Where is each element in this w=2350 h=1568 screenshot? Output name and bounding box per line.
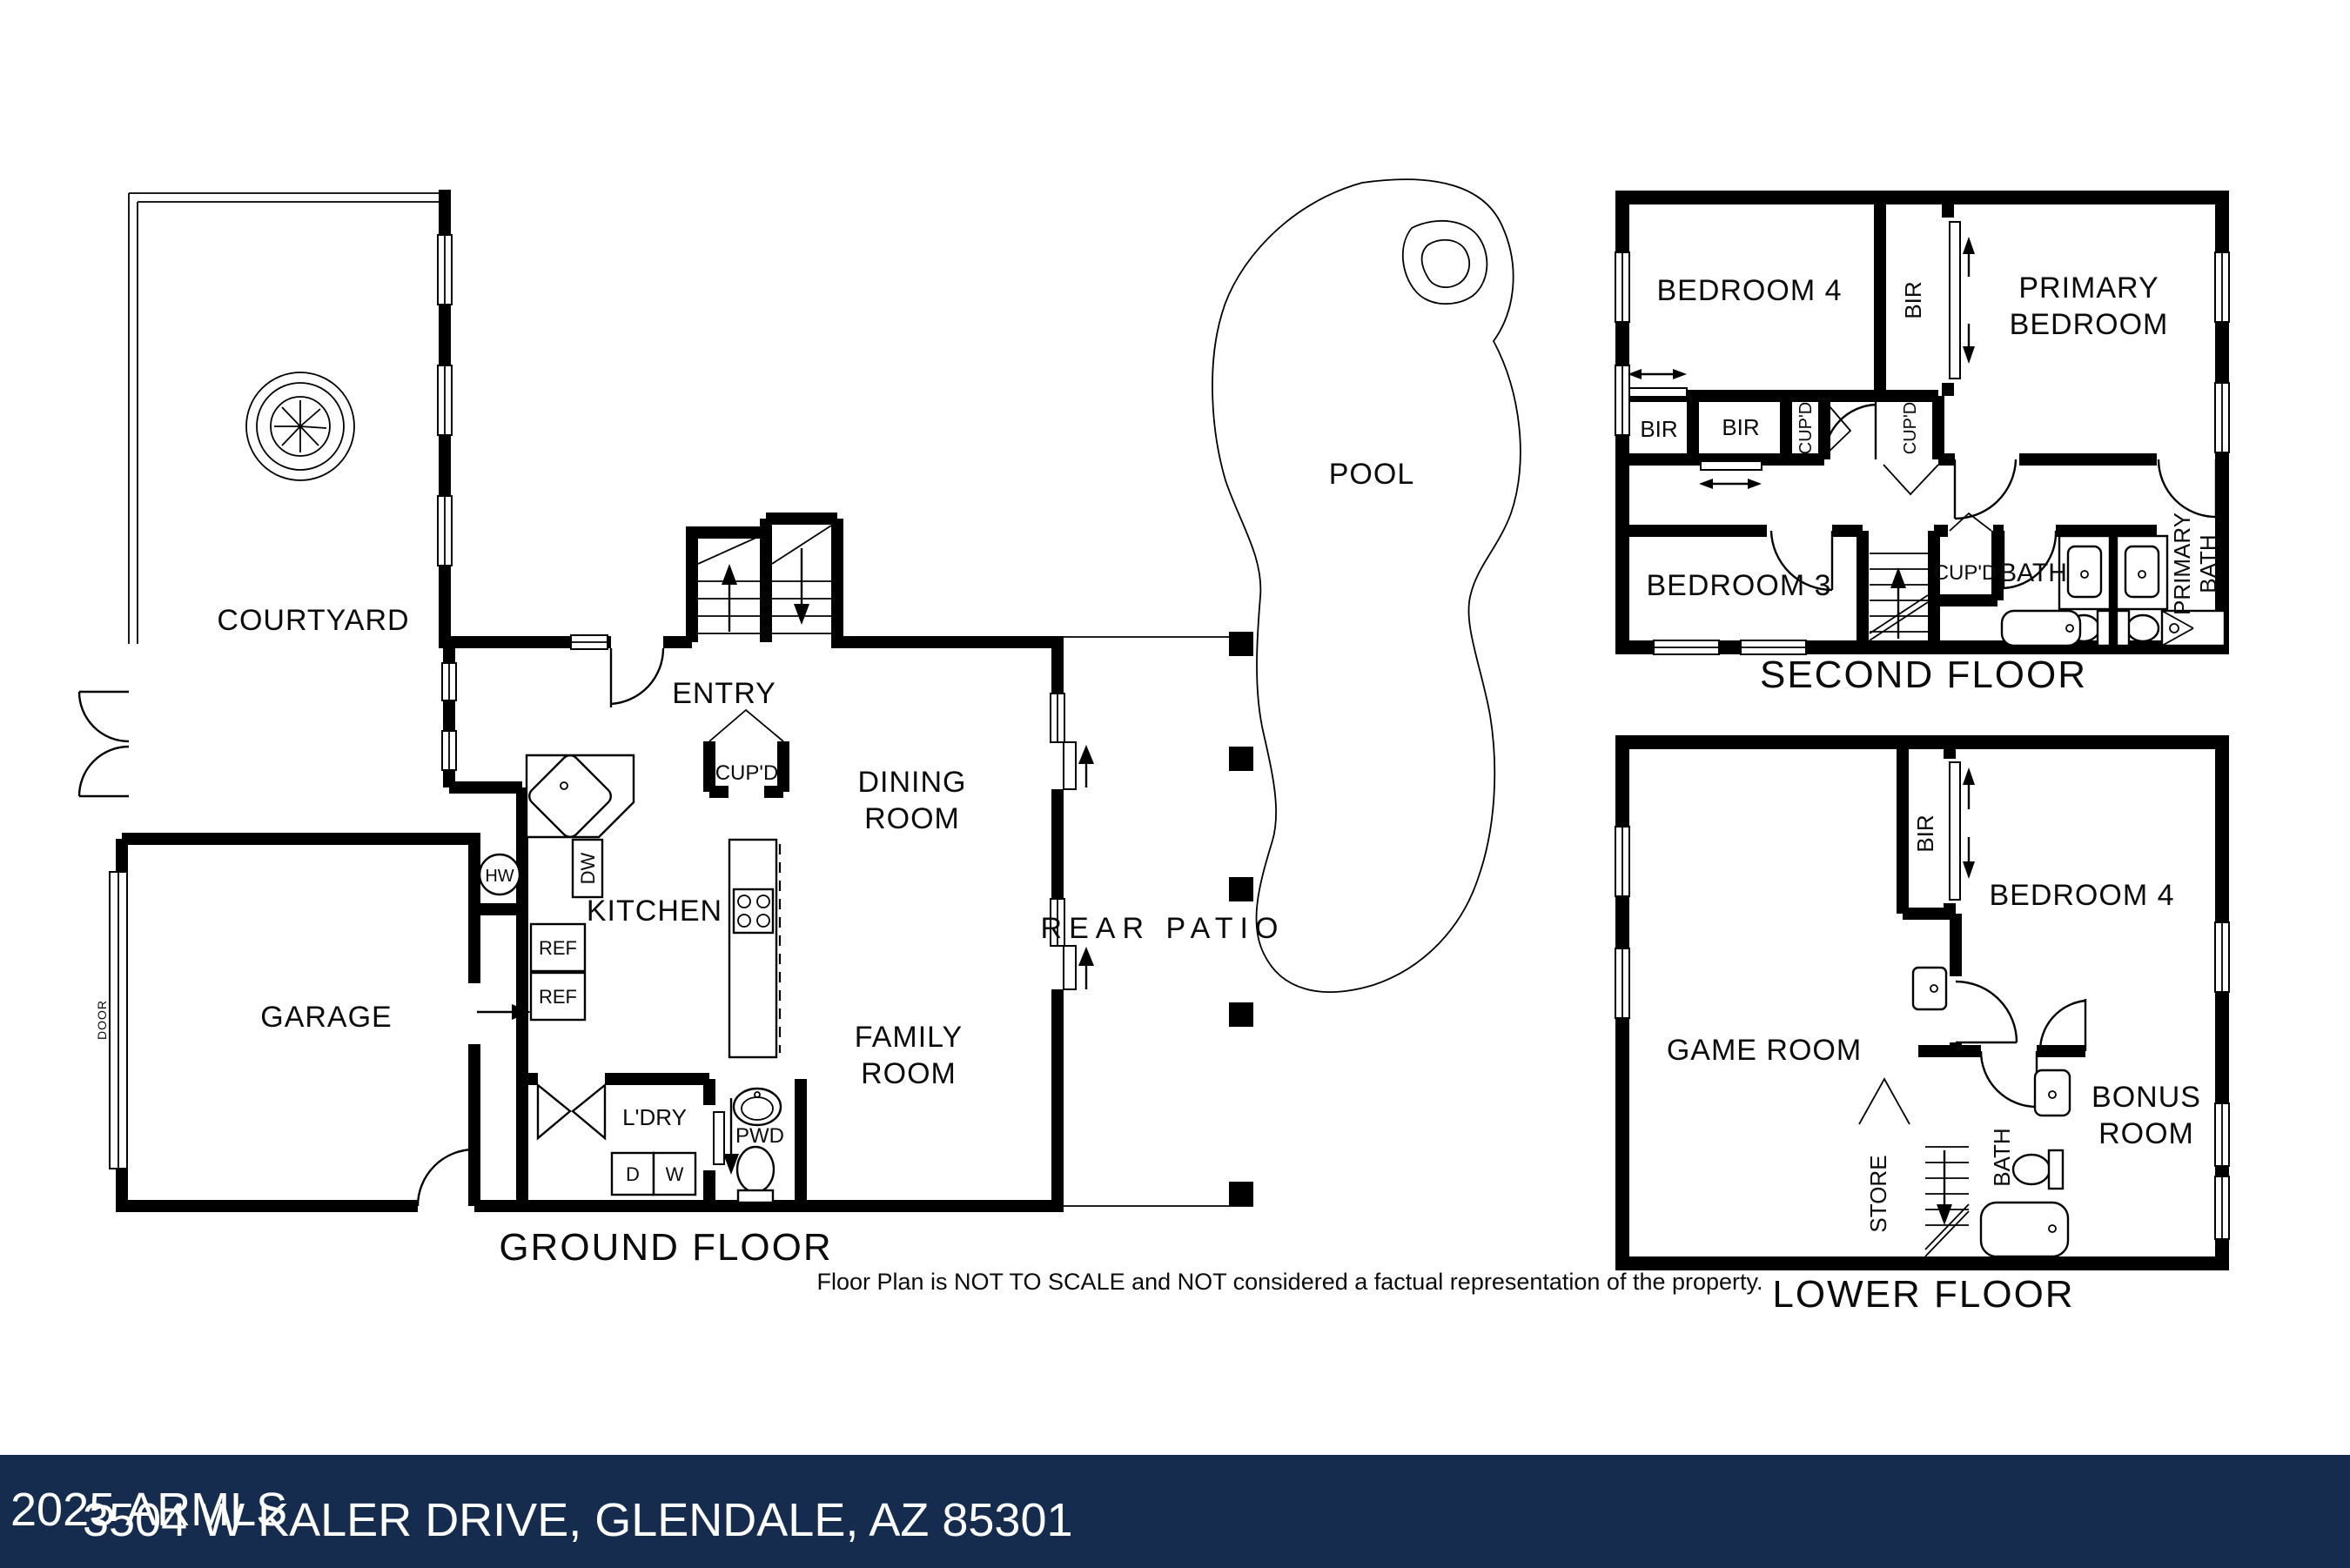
floor-title-second: SECOND FLOOR bbox=[1760, 653, 2087, 696]
ground-floor-plan: DOOR bbox=[79, 190, 1285, 1269]
slider-arrow-2 bbox=[1078, 947, 1094, 989]
floor-title-lower: LOWER FLOOR bbox=[1772, 1273, 2074, 1316]
entry-door bbox=[611, 648, 663, 707]
slider-panel-1 bbox=[1064, 742, 1076, 789]
room-label-powder: PWD bbox=[735, 1124, 784, 1148]
second-bir-slider bbox=[1950, 222, 1975, 379]
floor-plan-drawing: DOOR bbox=[0, 0, 2350, 1455]
cupd2-door bbox=[1883, 465, 1938, 494]
store-door bbox=[1859, 1079, 1910, 1124]
lower-stairs bbox=[1925, 1147, 1969, 1256]
bifold-door-right bbox=[573, 1085, 605, 1138]
room-label-kitchen: KITCHEN bbox=[587, 895, 722, 928]
closet-label-cupd-1: CUP'D bbox=[1796, 402, 1816, 455]
room-label-family-1: FAMILY bbox=[855, 1021, 963, 1054]
lower-sink-icon bbox=[1913, 968, 1946, 1009]
room-label-rear-patio: REAR PATIO bbox=[1041, 912, 1286, 945]
room-label-bath-second: BATH bbox=[1999, 559, 2067, 587]
disclaimer-text: Floor Plan is NOT TO SCALE and NOT consi… bbox=[816, 1269, 1762, 1295]
stove-icon bbox=[734, 889, 773, 933]
room-label-dining-2: ROOM bbox=[864, 802, 960, 835]
room-label-primary-bath-1: PRIMARY bbox=[2169, 513, 2195, 615]
lower-bath-sink-icon bbox=[2035, 1070, 2070, 1116]
pantry-label: CUP'D bbox=[715, 761, 779, 785]
slider-panel-2 bbox=[1064, 946, 1076, 989]
closet-label-bir-top: BIR bbox=[1900, 281, 1926, 318]
washer-label: W bbox=[666, 1163, 684, 1185]
lower-bath-toilet-icon bbox=[2013, 1150, 2063, 1189]
closet-label-store: STORE bbox=[1865, 1155, 1891, 1232]
bath-tub-icon bbox=[2002, 611, 2080, 646]
spa-outline-outer bbox=[1403, 221, 1487, 304]
pool: POOL bbox=[1212, 179, 1521, 992]
dryer-label: D bbox=[626, 1163, 640, 1185]
closet-label-bir-lower: BIR bbox=[1912, 814, 1938, 852]
pool-label: POOL bbox=[1329, 458, 1414, 491]
courtyard-gate-doors bbox=[79, 692, 129, 796]
floor-plan-page: DOOR bbox=[0, 0, 2350, 1568]
kitchen-bench bbox=[729, 840, 776, 1057]
room-label-dining-1: DINING bbox=[858, 766, 967, 799]
room-label-bedroom4-second: BEDROOM 4 bbox=[1656, 274, 1842, 307]
second-floor-plan: BEDROOM 4 PRIMARY BEDROOM BIR BIR BIR CU… bbox=[1615, 198, 2229, 696]
floor-title-ground: GROUND FLOOR bbox=[499, 1226, 832, 1269]
room-label-bonus-2: ROOM bbox=[2098, 1117, 2194, 1150]
room-label-game-room: GAME ROOM bbox=[1667, 1034, 1862, 1067]
bifold-door-left bbox=[538, 1085, 570, 1138]
room-label-bonus-1: BONUS bbox=[2091, 1081, 2201, 1114]
tree-icon bbox=[246, 372, 354, 480]
garage-door-label: DOOR bbox=[95, 1000, 109, 1040]
room-label-bedroom4-lower: BEDROOM 4 bbox=[1989, 879, 2174, 912]
dishwasher-label: DW bbox=[577, 852, 599, 884]
second-stairs bbox=[1870, 553, 1928, 640]
primary-vanity bbox=[2117, 536, 2167, 609]
room-label-entry: ENTRY bbox=[672, 677, 776, 710]
room-label-garage: GARAGE bbox=[260, 1001, 392, 1034]
lower-floor-plan: BIR BEDROOM 4 GAME ROOM STORE BATH BONUS… bbox=[1615, 742, 2229, 1316]
room-label-bath-lower: BATH bbox=[1989, 1128, 2015, 1186]
lower-bir-slider bbox=[1950, 762, 1975, 900]
spa-outline-inner bbox=[1422, 240, 1470, 287]
closet-label-cupd-3: CUP'D bbox=[1934, 561, 1997, 585]
room-label-family-2: ROOM bbox=[861, 1057, 957, 1090]
footer-address: 3504 W KALER DRIVE, GLENDALE, AZ 85301 bbox=[83, 1493, 1073, 1547]
lower-stairs-down-arrow bbox=[1937, 1150, 1952, 1225]
slider-arrow-1 bbox=[1078, 745, 1094, 787]
primary-shower-icon bbox=[2162, 611, 2225, 646]
powder-toilet-icon bbox=[737, 1147, 774, 1203]
fridge-2-label: REF bbox=[539, 986, 577, 1008]
closet-label-bir-2: BIR bbox=[1722, 414, 1759, 440]
room-label-primary-2: BEDROOM bbox=[2010, 308, 2169, 341]
lower-bath-tub-icon bbox=[1981, 1203, 2068, 1256]
room-label-primary-1: PRIMARY bbox=[2018, 271, 2159, 305]
pool-outline bbox=[1212, 179, 1521, 992]
closet-label-bir-1: BIR bbox=[1640, 416, 1677, 442]
room-label-primary-bath-2: BATH bbox=[2195, 534, 2221, 593]
stairs-up-arrow bbox=[722, 564, 737, 632]
stairs-down-arrow bbox=[794, 548, 809, 625]
room-label-laundry: L'DRY bbox=[622, 1104, 687, 1130]
courtyard-fence bbox=[129, 193, 448, 644]
second-stairs-up-arrow bbox=[1890, 567, 1906, 639]
hot-water-label: HW bbox=[485, 867, 514, 886]
powder-slider-panel bbox=[714, 1112, 724, 1164]
footer-bar: 2025 ARMLS 3504 W KALER DRIVE, GLENDALE,… bbox=[0, 1455, 2350, 1568]
closet-label-cupd-2: CUP'D bbox=[1901, 402, 1920, 455]
pantry-door bbox=[709, 710, 783, 741]
fridge-1-label: REF bbox=[539, 937, 577, 959]
room-label-courtyard: COURTYARD bbox=[217, 604, 409, 637]
powder-sink-icon bbox=[734, 1089, 781, 1125]
garage-entry-door bbox=[418, 1149, 474, 1206]
garage-door: DOOR bbox=[95, 872, 127, 1169]
room-label-bedroom3: BEDROOM 3 bbox=[1646, 569, 1831, 602]
